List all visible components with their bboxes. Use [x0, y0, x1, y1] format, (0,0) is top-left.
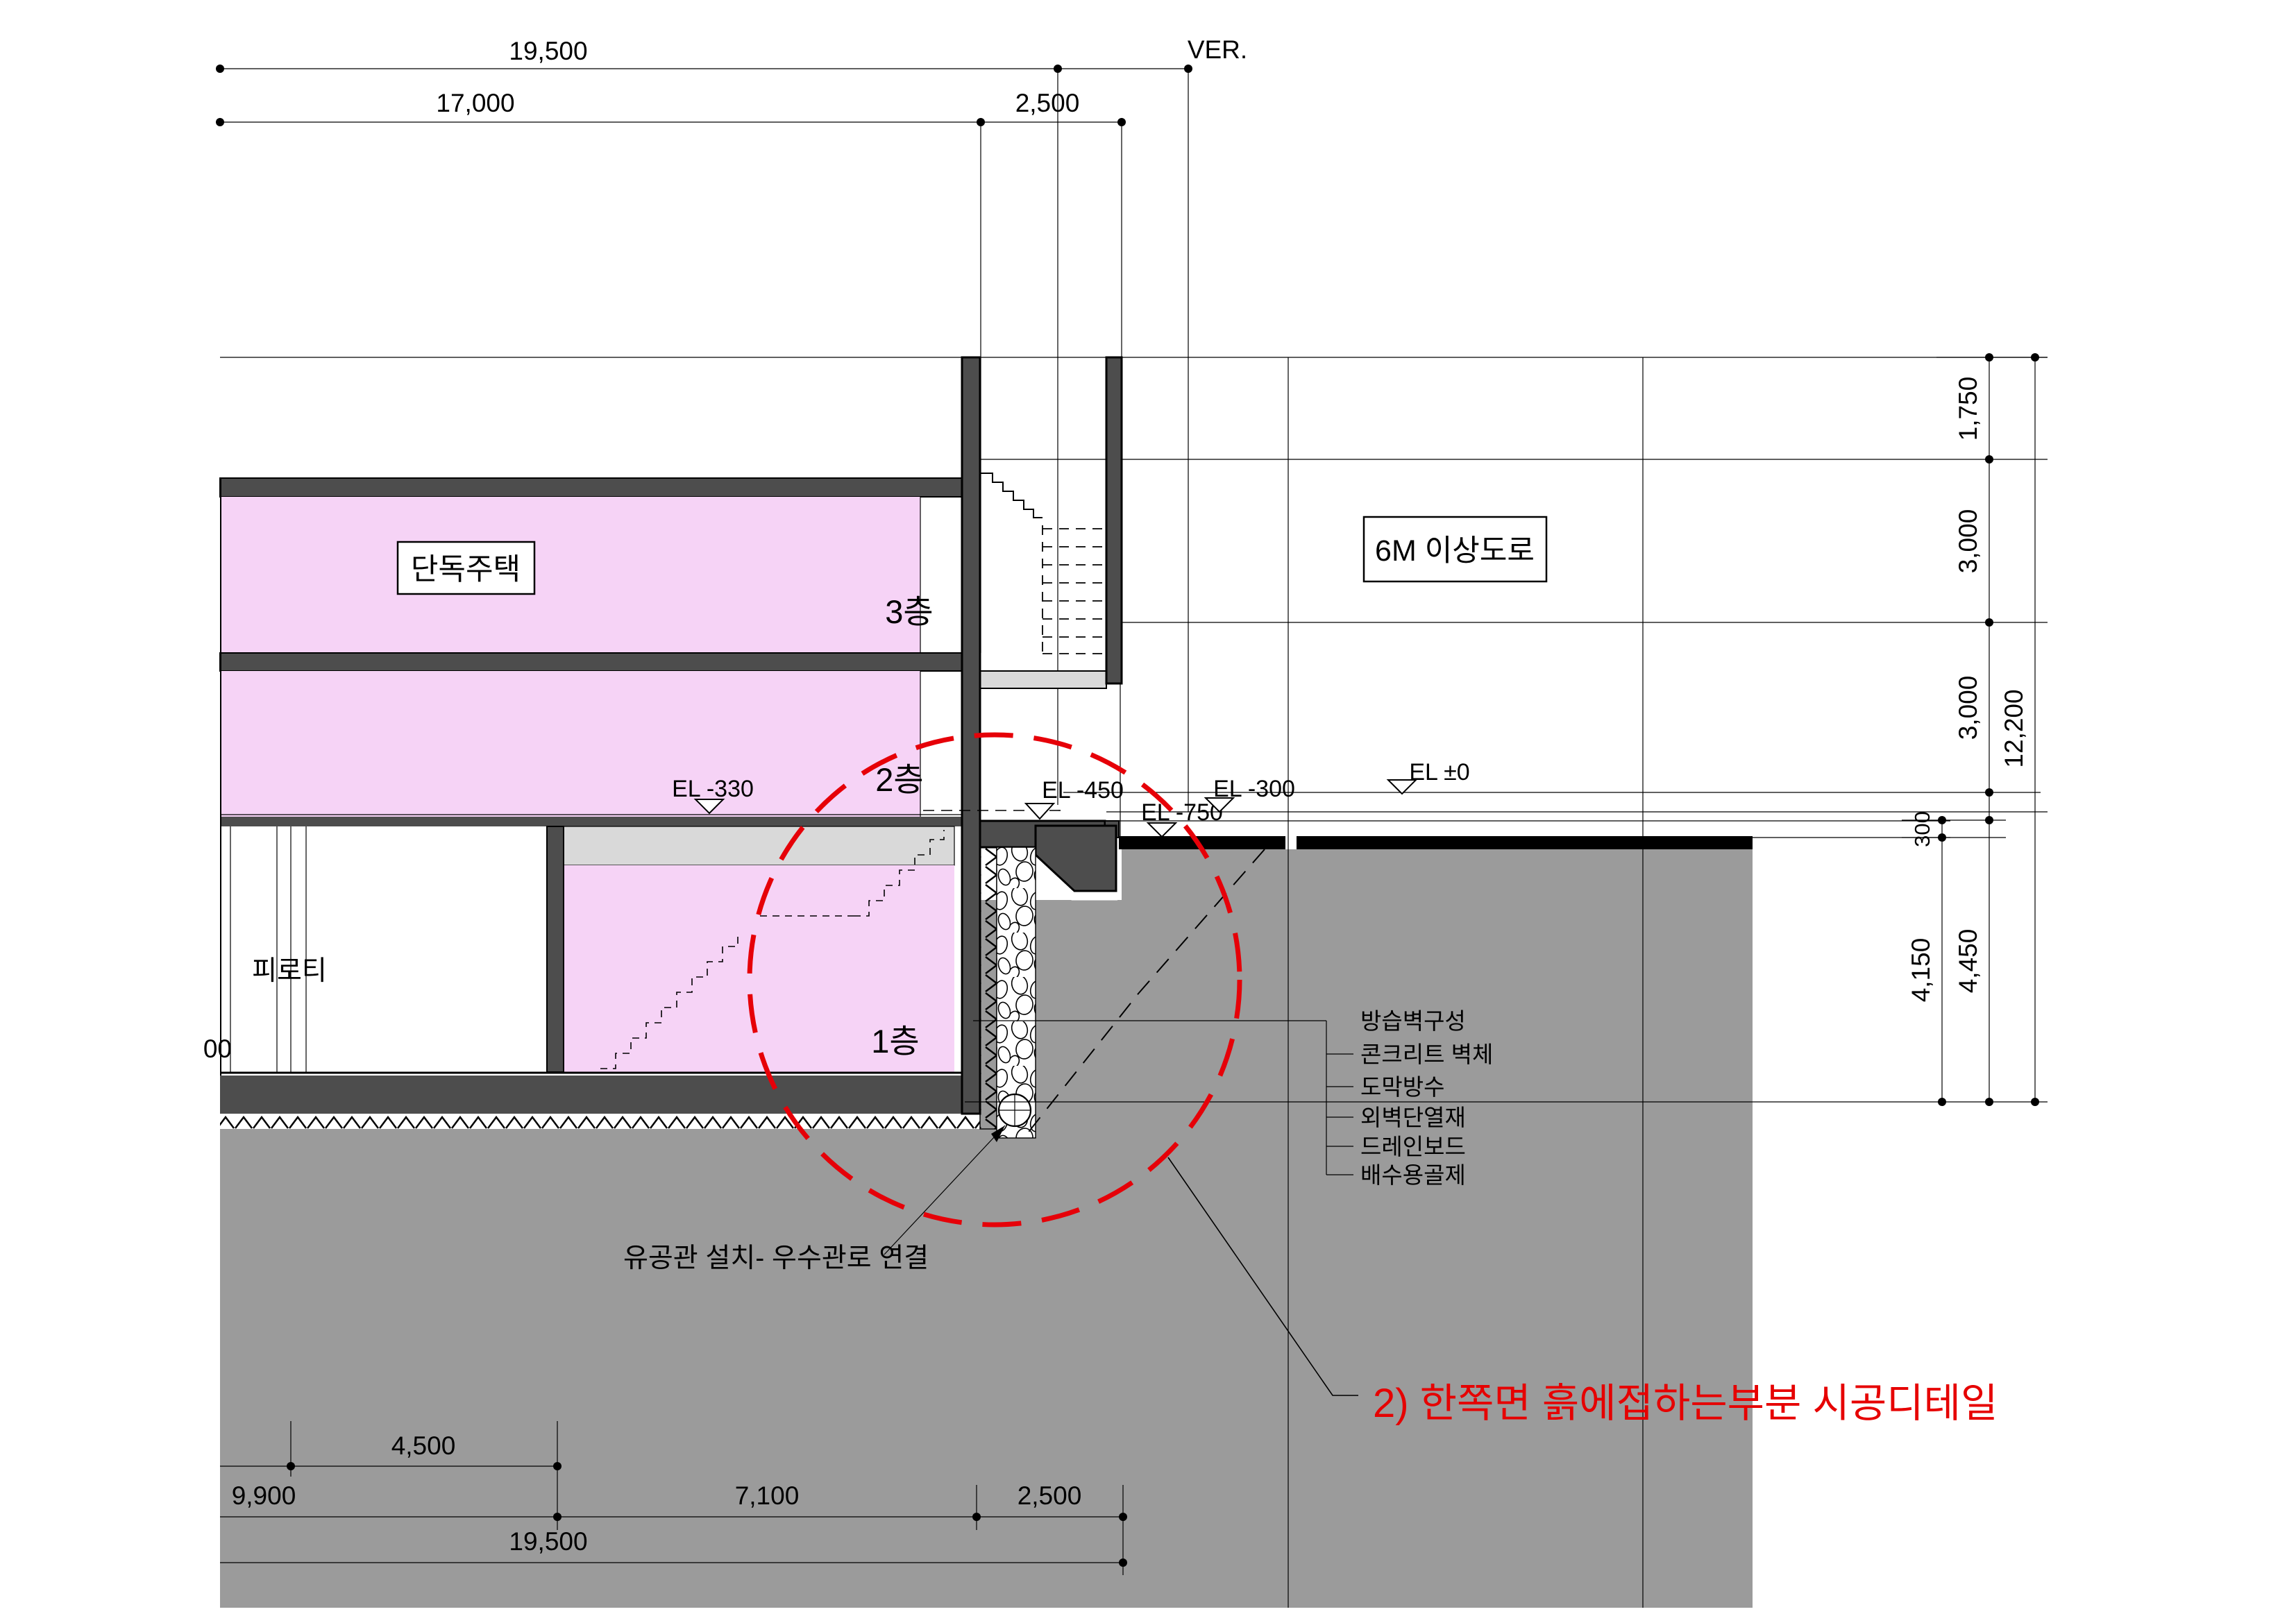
- dim-12200: 12,200: [2000, 689, 2028, 767]
- floor1-label: 1층: [871, 1023, 919, 1060]
- callout-aggregate: 배수용골제: [1360, 1162, 1466, 1188]
- floor3-room: [220, 497, 920, 653]
- dim-300: 300: [1910, 811, 1934, 847]
- road-pavement: [1119, 836, 1753, 849]
- underslab-insulation: [220, 1114, 980, 1129]
- callout-dampproof: 방습벽구성: [1360, 1008, 1466, 1034]
- soil-right: [1122, 849, 1753, 1608]
- floor2-label: 2층: [875, 761, 923, 798]
- dim-ver: VER.: [1188, 35, 1247, 64]
- perforated-pipe: [999, 1094, 1031, 1126]
- dim-1750: 1,750: [1954, 377, 1982, 441]
- el-750-marker: EL -750: [1141, 799, 1223, 837]
- callout-drainboard: 드레인보드: [1360, 1134, 1466, 1159]
- outer-wall: [1106, 357, 1122, 683]
- section-drawing: 19,500 VER. 17,000 2,500: [0, 0, 2296, 1623]
- soil-left: [220, 1129, 980, 1608]
- dim-9900: 9,900: [232, 1481, 296, 1510]
- house-label: 단독주택: [411, 553, 521, 586]
- dim-19500-bottom: 19,500: [509, 1527, 587, 1556]
- dim-2500-bottom: 2,500: [1018, 1481, 1082, 1510]
- retaining-curb: [1036, 826, 1116, 891]
- el-0-marker: EL ±0: [1388, 759, 1470, 794]
- dim-7100: 7,100: [735, 1481, 800, 1510]
- el-300-marker: EL -300: [1206, 776, 1295, 812]
- el-450-marker: EL -450: [1026, 777, 1124, 819]
- dim-19500-top: 19,500: [509, 37, 587, 65]
- stair-outline: [980, 473, 1043, 518]
- dim-3000-b: 3,000: [1954, 676, 1982, 740]
- asphalt-layer: [1119, 836, 1753, 849]
- road-label: 6M 이상도로: [1375, 534, 1535, 568]
- floor1-ceiling-band: [564, 826, 954, 865]
- dim-4450: 4,450: [1954, 929, 1982, 994]
- roof-slab: [220, 478, 980, 497]
- dim-partial: 00: [203, 1035, 232, 1063]
- piloti-wall: [547, 826, 564, 1072]
- piloti-label: 피로티: [252, 956, 327, 986]
- callout-concrete-wall: 콘크리트 벽체: [1360, 1042, 1493, 1067]
- floor3-slab: [220, 653, 980, 671]
- dim-4150: 4,150: [1907, 938, 1935, 1003]
- pavement-joint: [1285, 836, 1297, 849]
- dim-3000-a: 3,000: [1954, 509, 1982, 574]
- callout-membrane: 도막방수: [1360, 1074, 1444, 1100]
- floor2-slab: [220, 817, 962, 826]
- dim-4500: 4,500: [391, 1431, 456, 1460]
- floor3-label: 3층: [885, 593, 933, 630]
- dim-2500-top: 2,500: [1015, 89, 1080, 117]
- house-label-box: 단독주택: [398, 542, 534, 594]
- el-0-label: EL ±0: [1409, 759, 1469, 785]
- el-450-label: EL -450: [1042, 777, 1124, 804]
- drainboard-strip: [980, 847, 997, 1129]
- detail-note: 2) 한쪽면 흙에접하는부분 시공디테일: [1373, 1381, 1998, 1426]
- dim-17000: 17,000: [436, 89, 514, 117]
- callout-insulation: 외벽단열재: [1360, 1105, 1466, 1130]
- pipe-note: 유공관 설치- 우수관로 연결: [623, 1243, 929, 1273]
- ground-slab: [220, 1076, 980, 1114]
- stair-landing-slab: [980, 671, 1106, 688]
- floor2-room: [220, 671, 920, 817]
- el-330-label: EL -330: [672, 776, 754, 802]
- stair-treads-dashed: [1043, 525, 1104, 655]
- road-label-box: 6M 이상도로: [1364, 517, 1546, 581]
